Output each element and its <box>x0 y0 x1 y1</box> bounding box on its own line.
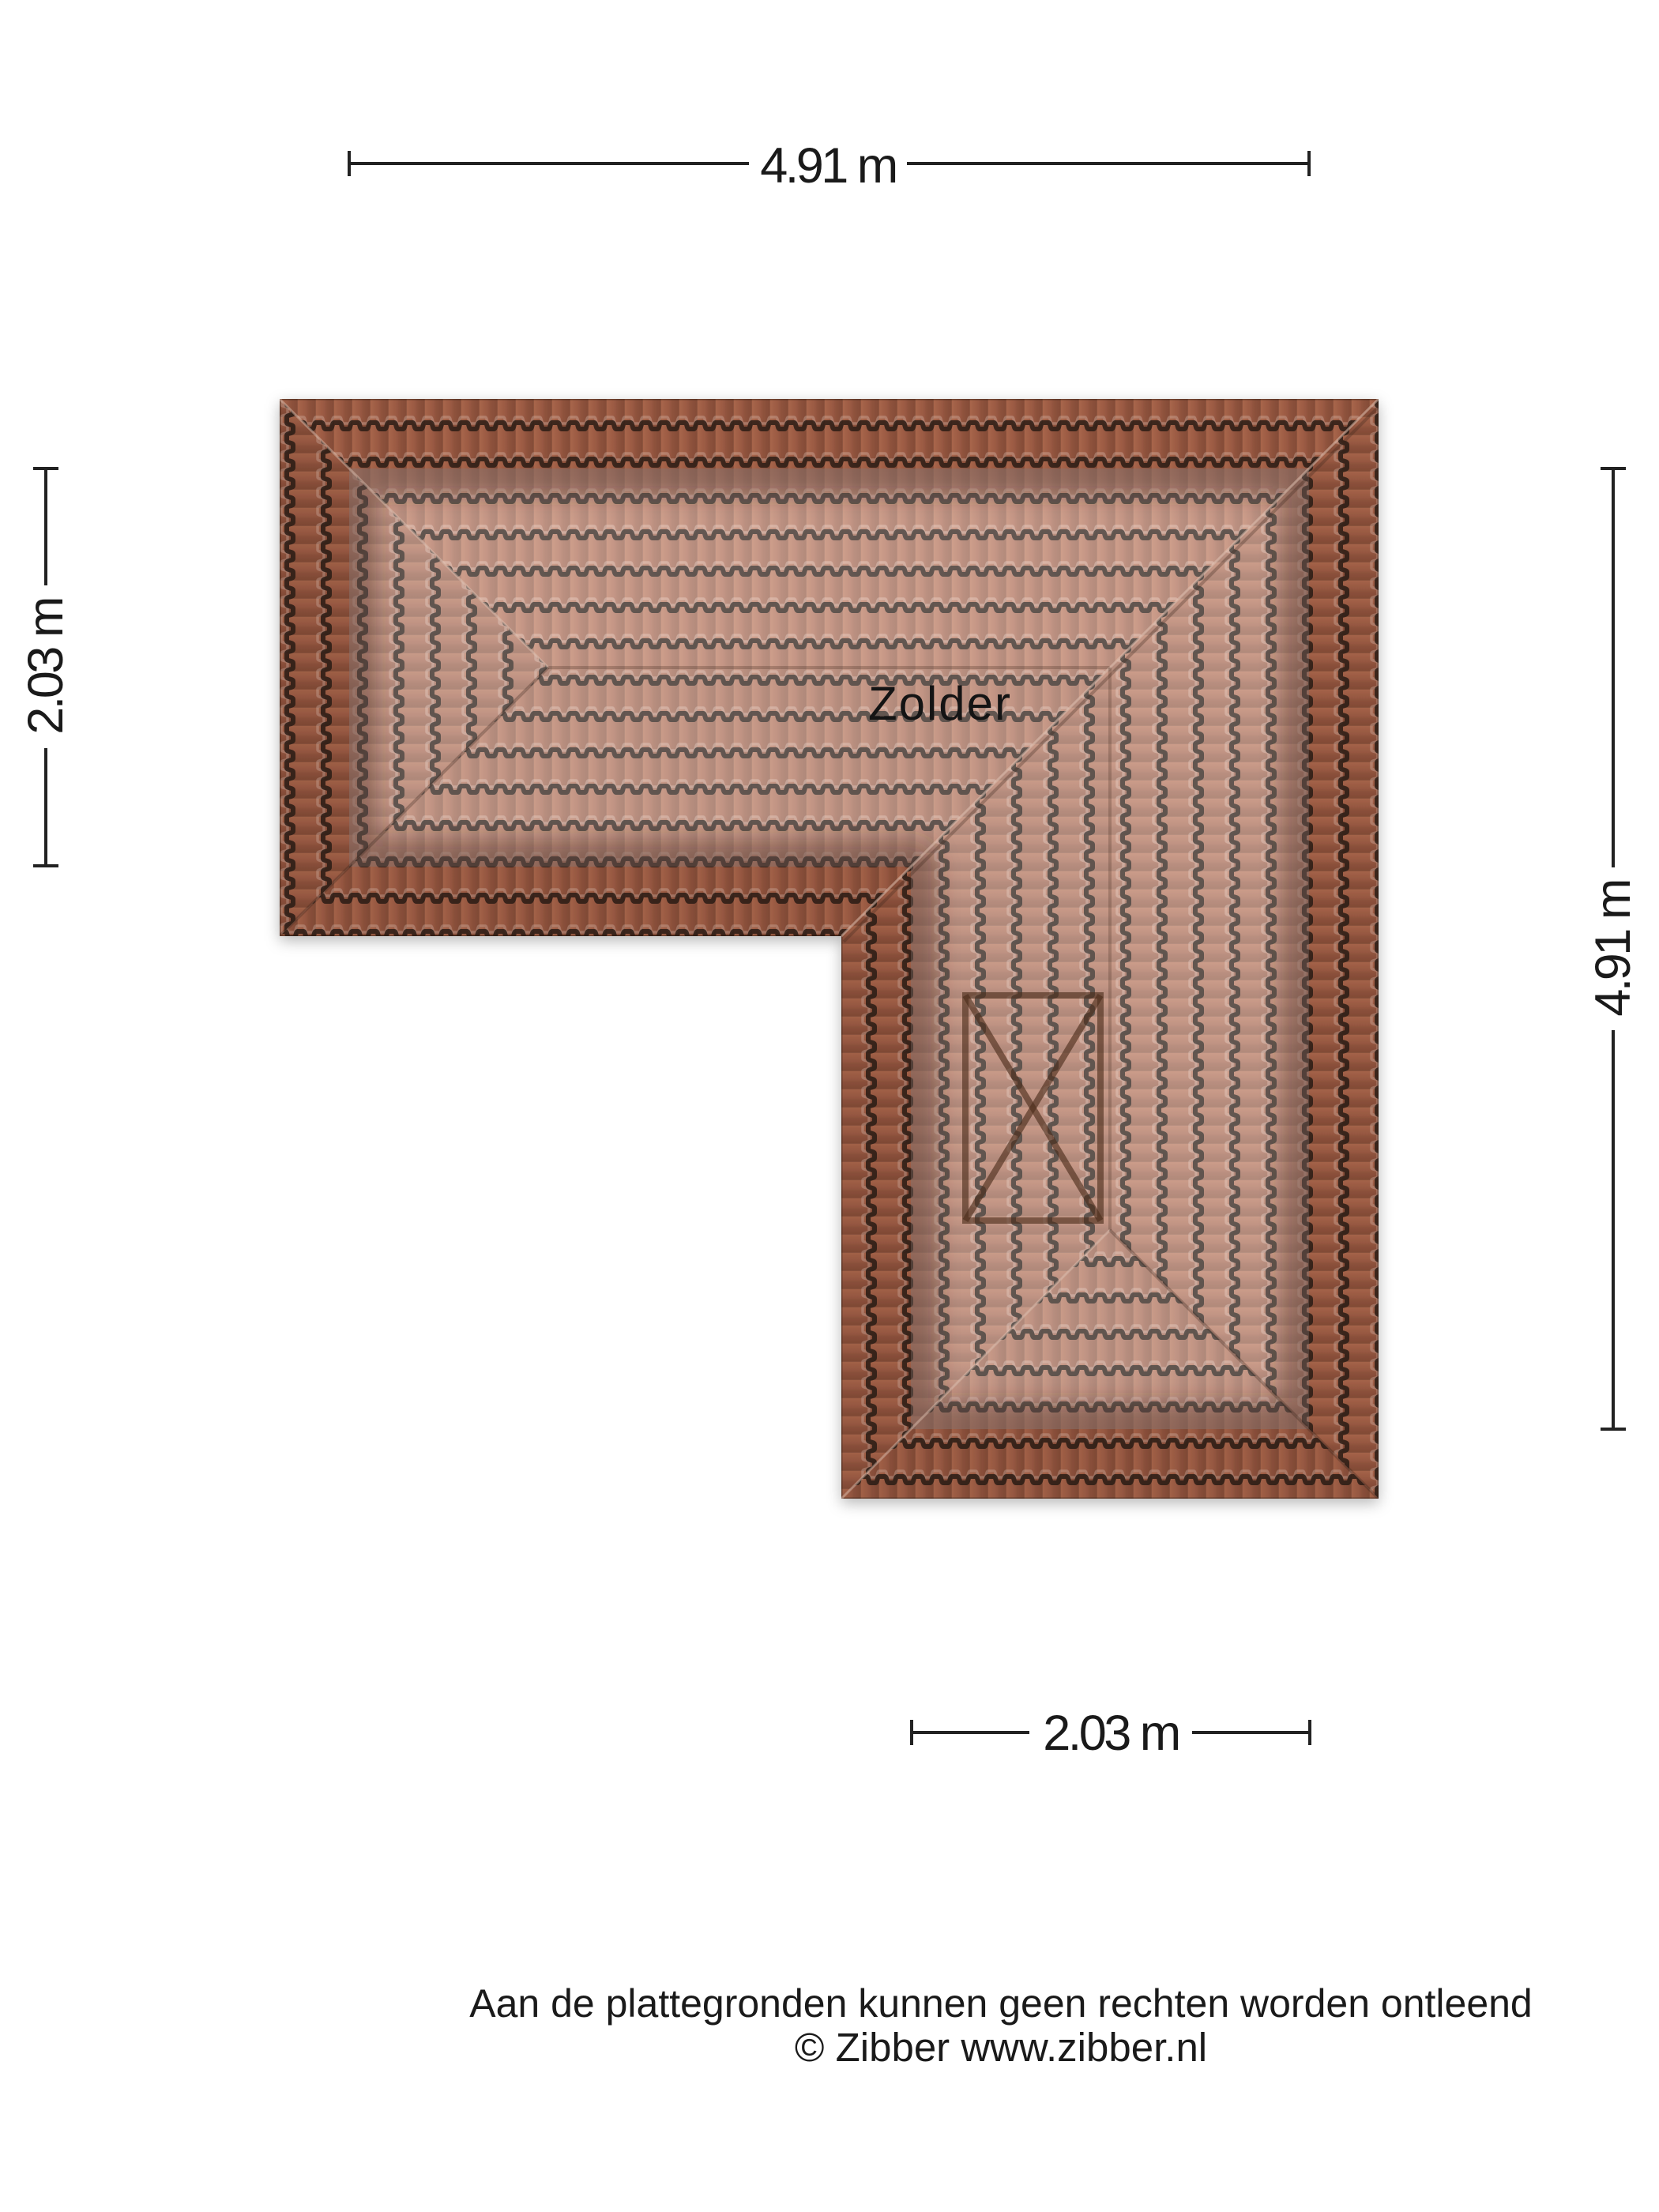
svg-text:4.91 m: 4.91 m <box>760 138 896 194</box>
svg-text:© Zibber www.zibber.nl: © Zibber www.zibber.nl <box>795 2025 1207 2070</box>
svg-text:2.03 m: 2.03 m <box>1043 1706 1179 1761</box>
svg-text:4.91 m: 4.91 m <box>1586 881 1641 1017</box>
svg-text:Zolder: Zolder <box>868 677 1012 730</box>
svg-text:2.03 m: 2.03 m <box>18 599 73 735</box>
svg-text:Aan de plattegronden kunnen ge: Aan de plattegronden kunnen geen rechten… <box>469 1981 1533 2026</box>
